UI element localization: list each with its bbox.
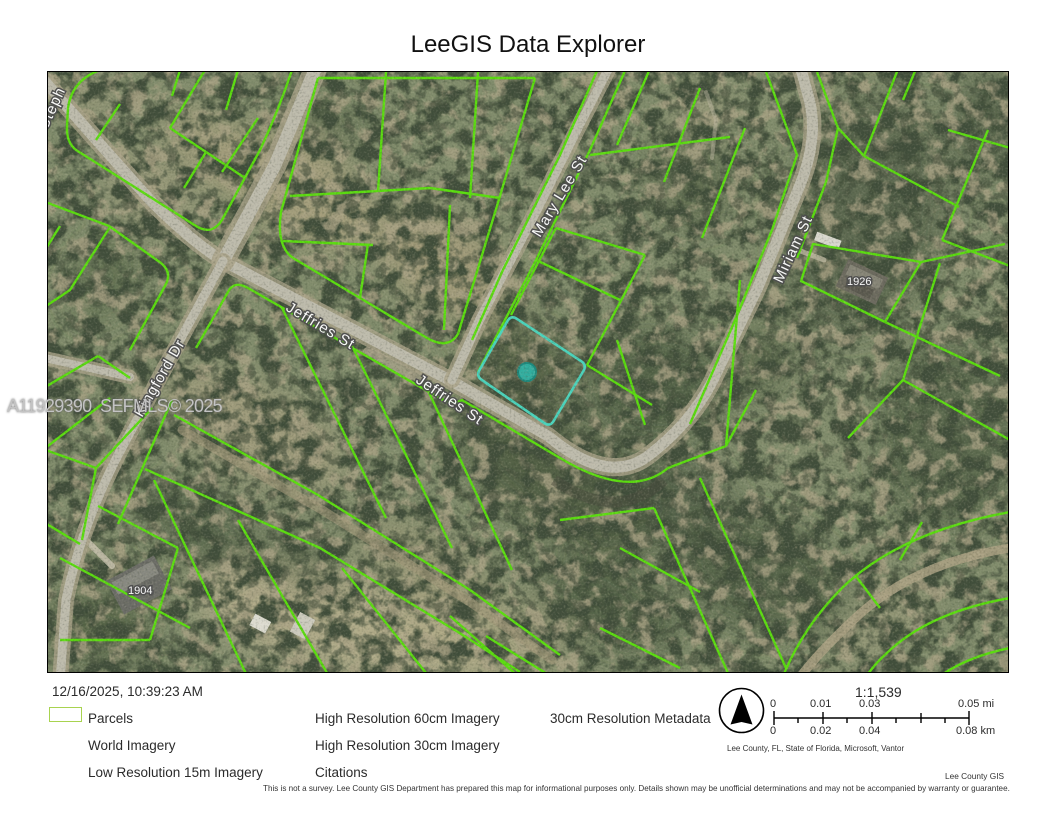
svg-text:1904: 1904 — [128, 585, 152, 597]
svg-text:1926: 1926 — [847, 276, 871, 288]
